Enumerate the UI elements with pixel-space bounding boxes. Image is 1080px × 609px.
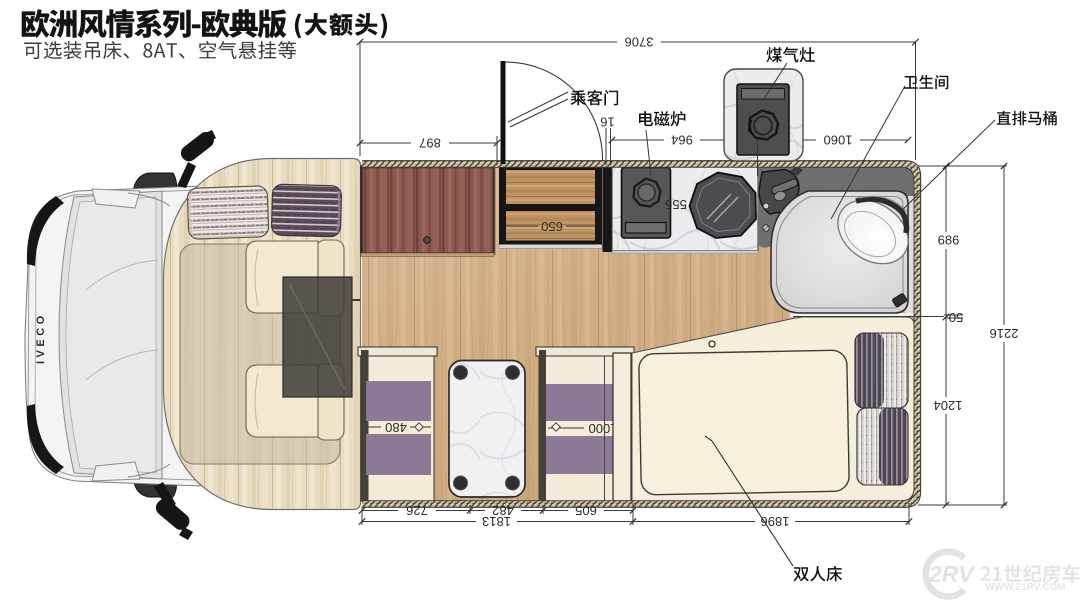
svg-text:964: 964: [671, 133, 693, 148]
svg-text:480: 480: [385, 420, 407, 435]
svg-text:1204: 1204: [934, 398, 963, 413]
svg-text:605: 605: [575, 503, 597, 518]
svg-text:686: 686: [938, 233, 960, 248]
svg-text:897: 897: [419, 136, 441, 151]
svg-text:1813: 1813: [482, 514, 511, 529]
svg-text:16: 16: [600, 115, 614, 130]
svg-text:3706: 3706: [625, 35, 654, 50]
svg-text:1896: 1896: [761, 514, 790, 529]
svg-text:726: 726: [406, 503, 428, 518]
svg-text:650: 650: [541, 219, 563, 234]
svg-text:IVECO: IVECO: [35, 312, 47, 364]
svg-text:2216: 2216: [990, 326, 1019, 341]
svg-text:1060: 1060: [824, 133, 853, 148]
svg-text:50: 50: [949, 310, 963, 325]
svg-text:WWW.21RV.COM: WWW.21RV.COM: [985, 582, 1066, 593]
svg-text:2RV: 2RV: [928, 561, 975, 587]
svg-text:555: 555: [665, 197, 687, 212]
